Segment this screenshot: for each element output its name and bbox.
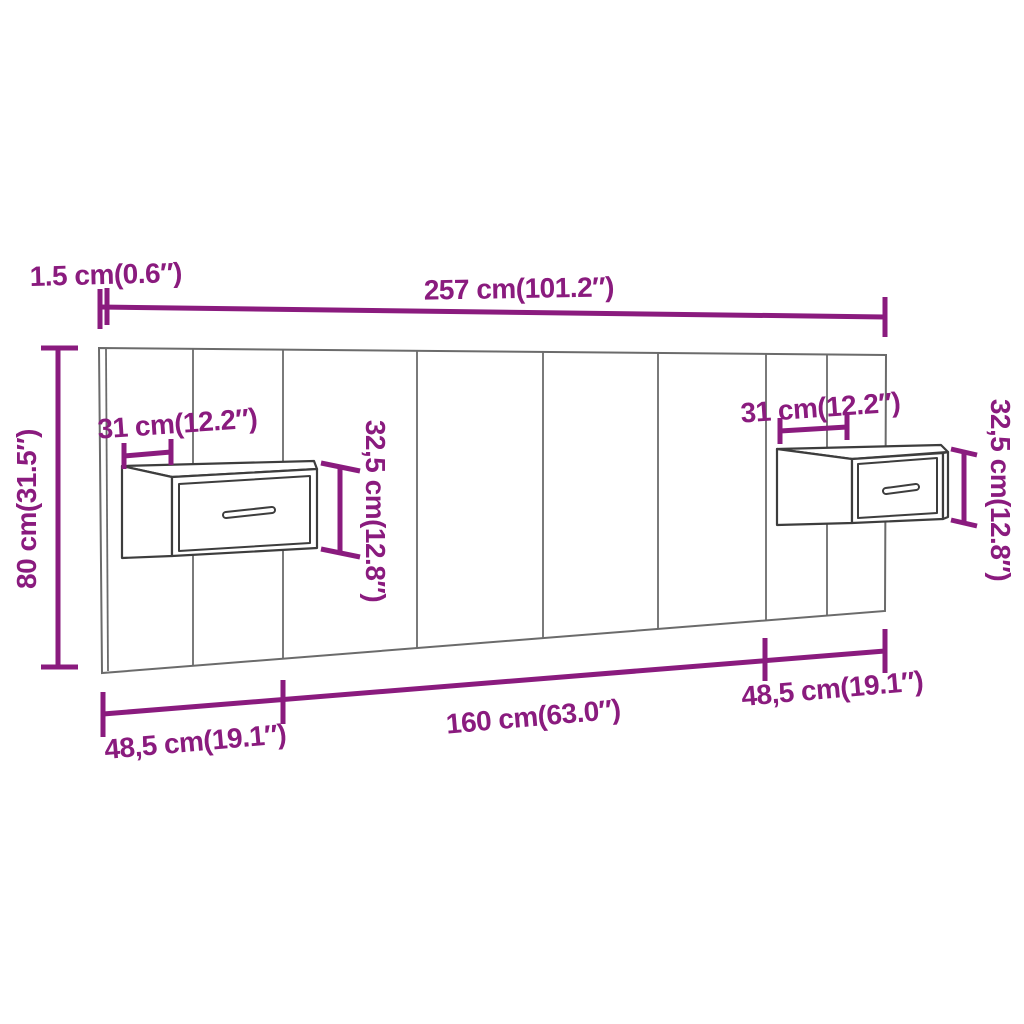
nightstand-right-edge-strip bbox=[943, 452, 948, 519]
dim-right-cabinet-height: 32,5 cm(12.8″) bbox=[951, 399, 1016, 581]
label-bottom-right-section: 48,5 cm(19.1″) bbox=[740, 665, 924, 712]
label-left-cabinet-height: 32,5 cm(12.8″) bbox=[360, 420, 391, 602]
nightstand-right-side-face bbox=[777, 449, 852, 525]
nightstand-right bbox=[777, 445, 948, 525]
product-dimension-image: 1.5 cm(0.6″) 257 cm(101.2″) 80 cm(31.5″)… bbox=[0, 0, 1024, 1024]
furniture-dimension-diagram: 1.5 cm(0.6″) 257 cm(101.2″) 80 cm(31.5″)… bbox=[0, 0, 1024, 1024]
label-total-height: 80 cm(31.5″) bbox=[11, 429, 42, 589]
nightstand-left bbox=[122, 461, 317, 558]
label-total-width: 257 cm(101.2″) bbox=[424, 271, 615, 305]
label-panel-thickness: 1.5 cm(0.6″) bbox=[29, 257, 182, 292]
dim-total-height: 80 cm(31.5″) bbox=[11, 348, 78, 667]
label-bottom-left-section: 48,5 cm(19.1″) bbox=[103, 718, 287, 765]
nightstand-left-side-face bbox=[122, 466, 172, 558]
label-right-cabinet-height: 32,5 cm(12.8″) bbox=[985, 399, 1016, 581]
label-bottom-center-section: 160 cm(63.0″) bbox=[445, 693, 622, 739]
dim-total-width: 1.5 cm(0.6″) 257 cm(101.2″) bbox=[29, 257, 885, 337]
